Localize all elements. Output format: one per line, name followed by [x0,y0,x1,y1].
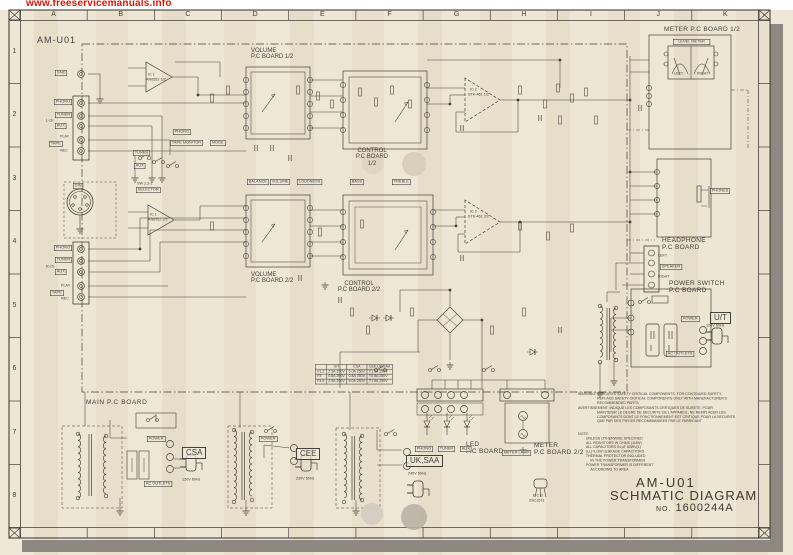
led-tuner-label: TUNER [438,446,455,452]
speaker-label: SPEAKER [660,264,682,270]
mode-label: MODE [210,140,225,146]
headphone-board-line2: P.C BOARD [662,245,706,252]
ac-outlets-label-switchboard: AC OUTLETS [666,351,694,357]
led-phono-label: PHONO [415,446,433,452]
rec-jack-label-l: REC [60,149,68,153]
selector-switch-ref: SW 2,3-1 [137,182,153,186]
led-board-label: LED P.C BOARD [466,442,504,456]
balance-label: BALANCE [247,179,269,185]
speaker-right-label: RIGHT [658,275,670,279]
safety-warning-text: WARNING: INDICATES SAFETY CRITICAL COMPO… [578,392,768,424]
din-label: DIN [73,183,83,189]
selector-label: SELECTOR [136,187,161,193]
uk-saa-voltage-label: 240V 50Hz [408,472,426,476]
tuner-jack-label-l: TUNER [55,112,72,118]
ut-voltage-label: 120V 60Hz [706,324,724,328]
ic1a-ref: IC 1 [148,73,155,77]
title-text: SCHMATIC DIAGRAM [610,489,757,503]
meter-board-2-label: METER P.C BOARD 2/2 [534,443,584,457]
meter-board-1-label: METER P.C BOARD 1/2 [664,27,740,34]
fuse-cell: 0.8A 250V [326,374,346,379]
grid-column-label: H [515,11,533,18]
control-board-2-label: CONTROL P.C BOARD 2/2 [326,281,392,294]
ic2a-ref: IC 2 [470,88,477,92]
meter-left-label: LEFT [674,72,683,76]
ic2b-ref: IC 2 [470,210,477,214]
grid-row-label: 8 [9,492,20,499]
site-watermark-link: www.freeservicemanuals.info [26,0,172,10]
csa-label: CSA [182,447,206,459]
scanned-schematic-page: www.freeservicemanuals.info AM-U01 METER… [0,0,793,555]
tuner-jack-label-r: TUNER [55,257,72,263]
bass-label: BASS [350,179,364,185]
power-switch-board-label: POWER SWITCH P.C BOARD [669,281,725,295]
grid-column-label: J [649,11,667,18]
title-no-value: 1600244A [676,502,734,514]
grid-column-label: C [179,11,197,18]
csa-voltage-label: 120V 60Hz [182,478,200,482]
grid-row-label: 3 [9,175,20,182]
meter-board-2-line2: P.C BOARD 2/2 [534,450,584,457]
gnd-label: GND [55,70,67,76]
note-text: NOTE: UNLESS OTHERWISE SPECIFIED ALL RES… [578,432,712,472]
led-aux-label: AUX [460,446,472,452]
grid-row-label: 1 [9,48,20,55]
tape-jack-label-r: TAPE [50,290,64,296]
cee-voltage-label: 220V 50Hz [296,477,314,481]
aux-switch-label: AUX [134,163,146,169]
fuse-cell: 0.8A 250V [347,374,367,379]
cee-label: CEE [296,448,320,460]
grid-column-label: D [246,11,264,18]
phones-label: PHONES [710,188,730,194]
l-ch-label: L-ch [46,119,53,123]
ic1a-part: AN6552 1/2 [146,78,166,82]
fuse-cell: 2.5A 250V [326,379,346,384]
power-switch-board-line2: P.C BOARD [669,288,725,295]
grid-column-label: B [112,11,130,18]
ic1b-ref: IC 1 [150,213,157,217]
aux-jack-label-r: AUX [55,269,67,275]
treble-label: TREBLE [392,179,411,185]
phono-jack-label-r: PHONO [54,245,72,251]
volume-board-1-line2: P.C BOARD 1/2 [251,54,293,60]
tuner-switch-label: TUNER [133,150,150,156]
phono-jack-label-l: PHONO [54,99,72,105]
play-jack-label-r: PLAY [61,284,70,288]
meter-right-label: RIGHT [697,72,709,76]
fuse-cell: 5.0A 250V [347,379,367,384]
control-board-2-line2: P.C BOARD 2/2 [326,287,392,293]
tape-jack-label-l: TAPE [49,141,63,147]
fuse-cell: T1.6A 250V [367,379,392,384]
transistor-part-label: 2SC1571 [529,499,545,503]
aux-jack-label-l: AUX [55,123,67,129]
ut-label: U/T [710,312,731,324]
phono-switch-label: PHONO [173,129,191,135]
fuse-cell: F4,5 [315,379,326,384]
headphone-board-label: HEADPHONE P.C BOARD [662,238,706,252]
note-item: ACCORDING TO AREA [590,468,712,472]
warning-line: QUE PAR DES PIECES RECOMMANDEES PAR LE F… [597,420,768,425]
grid-column-label: G [448,11,466,18]
fuse-cell: 5.0A 250V [347,369,367,374]
grid-row-label: 5 [9,302,20,309]
ic2b-part: STK-461 2/2 [468,215,489,219]
tape-monitor-label: TAPE MONITOR [170,140,203,146]
power-label-cee: POWER [259,436,277,442]
level-meter-label: LEVEL METER [673,39,710,45]
power-label-csa: POWER [147,436,165,442]
fuse-col-cee: CEE,UK,SAA [367,364,392,369]
grid-column-label: E [313,11,331,18]
volume-board-1-label: VOLUME P.C BOARD 1/2 [251,48,293,61]
meter-lamp-label: METER LAMP [502,450,531,456]
grid-column-label: I [582,11,600,18]
transistor-pins-label: E C B [533,494,543,498]
grid-column-label: K [716,11,734,18]
ac-outlets-label-csa: AC OUTLETS [144,481,172,487]
play-jack-label-l: PLAY [60,135,69,139]
ic2a-part: STK-461 1/2 [468,93,489,97]
control-board-1-line3: 1/2 [346,161,398,167]
loudness-label: LOUDNESS [297,179,322,185]
fuse-row: F4,5 2.5A 250V 5.0A 250V T1.6A 250V [315,379,392,384]
speaker-left-label: LEFT [658,254,667,258]
ic1b-part: AN6552 2/2 [148,218,168,222]
grid-row-label: 2 [9,111,20,118]
grid-row-label: 7 [9,429,20,436]
grid-column-label: A [45,11,63,18]
model-label: AM-U01 [37,36,76,45]
title-no-label: NO. [656,506,671,513]
title-number: NO. 1600244A [656,503,734,515]
r-ch-label: R-ch [46,265,54,269]
fuse-cell: 2.5A 250V [326,369,346,374]
control-board-1-label: CONTROL P.C BOARD 1/2 [346,148,398,167]
volume-board-2-line2: P.C BOARD 2/2 [251,278,293,284]
power-label-switchboard: POWER [681,316,699,322]
volume-board-2-label: VOLUME P.C BOARD 2/2 [251,272,293,285]
fuse-table: U/T CSA CEE,UK,SAA F1,2 2.5A 250V 5.0A 2… [315,364,393,384]
volume-label: VOLUME [270,179,290,185]
main-board-label: MAIN P.C BOARD [86,400,147,407]
rec-jack-label-r: REC [61,297,69,301]
led-board-line2: P.C BOARD [466,449,504,456]
uk-saa-label: UK,SAA [406,455,443,467]
grid-column-label: F [380,11,398,18]
grid-row-label: 6 [9,365,20,372]
grid-row-label: 4 [9,238,20,245]
